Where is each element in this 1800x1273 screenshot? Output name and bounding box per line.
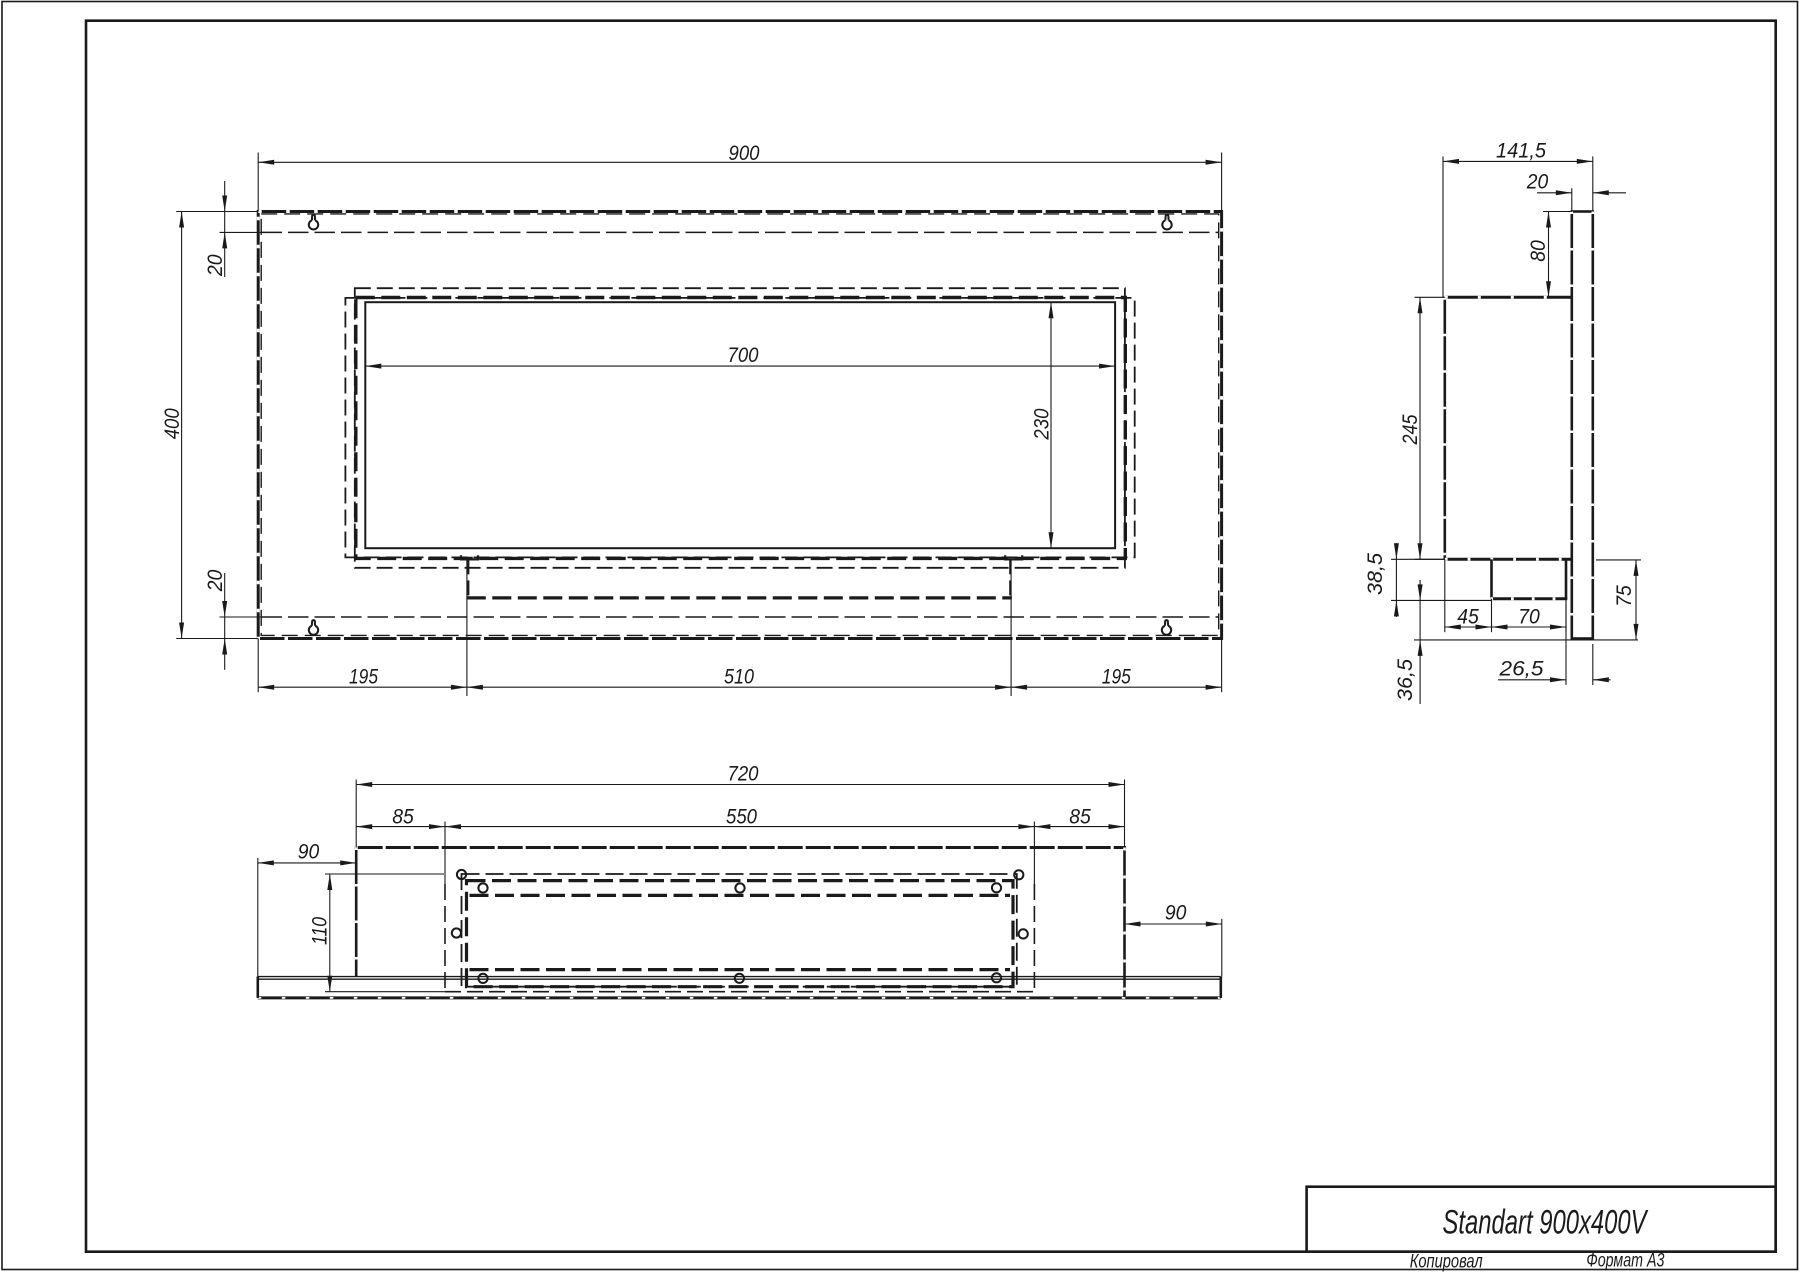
- svg-text:38,5: 38,5: [1363, 552, 1387, 595]
- svg-text:720: 720: [728, 762, 759, 786]
- svg-text:36,5: 36,5: [1393, 658, 1417, 701]
- svg-text:550: 550: [726, 805, 757, 829]
- svg-text:400: 400: [160, 408, 184, 439]
- svg-text:Формат А3: Формат А3: [1586, 1250, 1664, 1272]
- svg-text:70: 70: [1518, 604, 1540, 628]
- svg-text:75: 75: [1612, 584, 1636, 606]
- svg-text:900: 900: [729, 141, 760, 165]
- svg-text:20: 20: [1526, 170, 1548, 194]
- svg-text:141,5: 141,5: [1496, 138, 1547, 162]
- svg-text:85: 85: [392, 805, 414, 829]
- svg-text:245: 245: [1398, 414, 1422, 446]
- svg-text:195: 195: [1102, 665, 1132, 689]
- svg-text:90: 90: [298, 840, 320, 864]
- svg-text:85: 85: [1069, 805, 1091, 829]
- svg-text:45: 45: [1457, 604, 1479, 628]
- svg-text:110: 110: [308, 917, 332, 945]
- svg-text:Standart 900x400V: Standart 900x400V: [1443, 1204, 1649, 1242]
- svg-text:90: 90: [1165, 901, 1187, 925]
- svg-text:230: 230: [1029, 409, 1053, 441]
- svg-text:195: 195: [349, 665, 379, 689]
- svg-text:20: 20: [203, 254, 227, 276]
- svg-text:26,5: 26,5: [1498, 657, 1544, 681]
- svg-text:510: 510: [724, 665, 754, 689]
- svg-text:80: 80: [1526, 240, 1550, 262]
- svg-text:Копировал: Копировал: [1410, 1251, 1483, 1273]
- svg-text:20: 20: [203, 570, 227, 592]
- svg-text:700: 700: [728, 343, 759, 367]
